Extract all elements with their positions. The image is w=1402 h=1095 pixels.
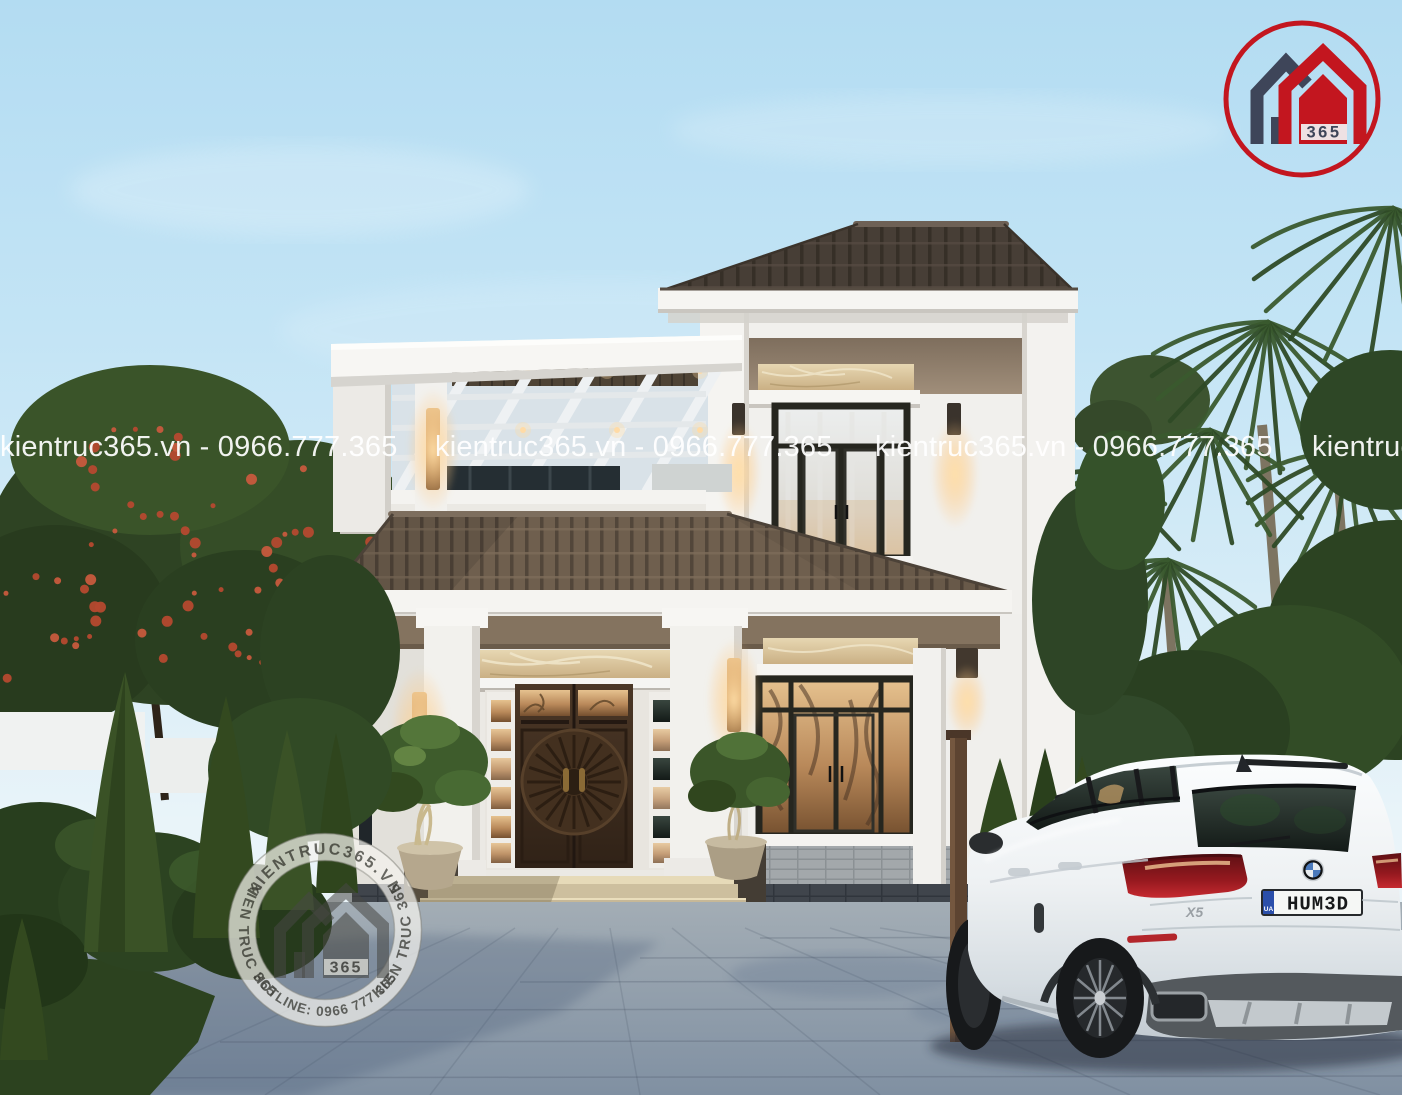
marble-panel-window [763,638,918,666]
exhaust-outlet [1152,993,1206,1020]
fender-vent [1034,903,1044,933]
bmw-roundel-icon [1303,860,1324,881]
door-transom-right [578,690,628,716]
svg-text:KIENTRUC365.VN: KIENTRUC365.VN [245,841,405,900]
stamp-arc-top: KIENTRUC365.VN [245,841,405,900]
balcony-railing [336,490,706,504]
rear-bumper [1146,973,1402,1040]
watermark-text: kientruc365.vn - 0966.777.365 [1312,431,1402,464]
model-badge: X5 [1185,904,1203,920]
logo-badge: 365 [1306,124,1341,142]
bay-pilaster [913,648,945,888]
door-transom-left [520,690,570,716]
tower-roof [658,224,1078,323]
roof-rail-rear [1246,762,1345,766]
door-sidelight-left [487,692,515,868]
marble-panel-door [476,650,672,680]
marble-panel-upper [758,364,914,392]
front-door [485,684,677,870]
plate-number: HUM3D [1287,894,1349,916]
scene-canvas: UA HUM3D X5 [0,0,1402,1095]
rendered-exterior-scene: UA HUM3D X5 KIENTRUC365.VN KIEN TRUC 365 [0,0,1402,1095]
watermark-text: kientruc365.vn - 0966.777.365 [435,431,833,464]
watermark-text: kientruc365.vn - 0966.777.365 [0,431,398,464]
license-plate: UA HUM3D [1262,890,1362,916]
stamp-logo-houses: 365 [280,891,383,978]
company-logo: 365 [1214,11,1390,187]
plate-country-code: UA [1264,906,1274,913]
ground-floor [352,608,1022,949]
terrace-door-glass [436,466,620,492]
stamp-watermark: KIENTRUC365.VN KIEN TRUC 365 HOTLINE: 09… [215,818,435,1042]
logo-houses: 365 [1257,52,1360,144]
sunburst-carving [522,730,626,834]
watermark-text: kientruc365.vn - 0966.777.365 [875,431,1273,464]
stamp-badge: 365 [330,960,363,977]
side-mirror [969,832,1003,854]
